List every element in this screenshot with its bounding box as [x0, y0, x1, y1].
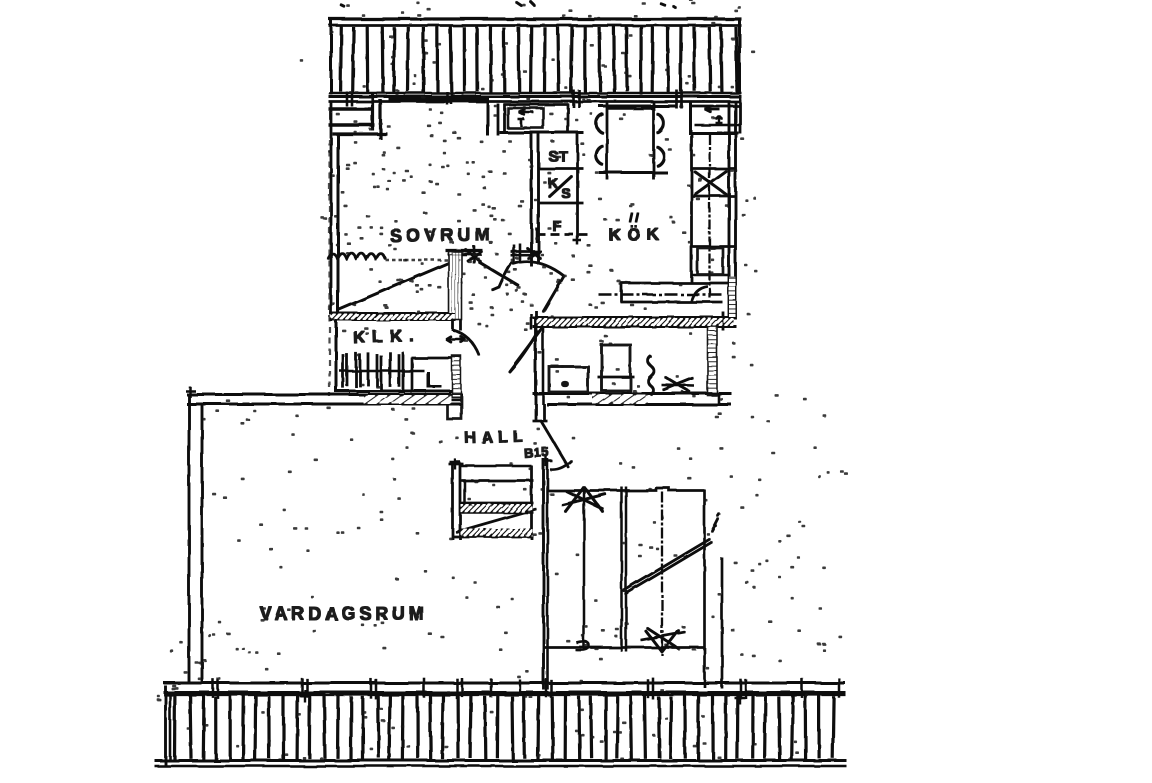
svg-text:VARDAGSRUM: VARDAGSRUM: [260, 604, 428, 624]
svg-text:K: K: [548, 175, 558, 191]
svg-text:SOVRUM: SOVRUM: [389, 225, 494, 246]
svg-text:F: F: [552, 218, 561, 235]
svg-text:KÖK: KÖK: [608, 225, 665, 244]
svg-text:KLK.: KLK.: [353, 326, 421, 347]
svg-text:HALL: HALL: [464, 428, 527, 447]
svg-text:S: S: [561, 185, 570, 201]
